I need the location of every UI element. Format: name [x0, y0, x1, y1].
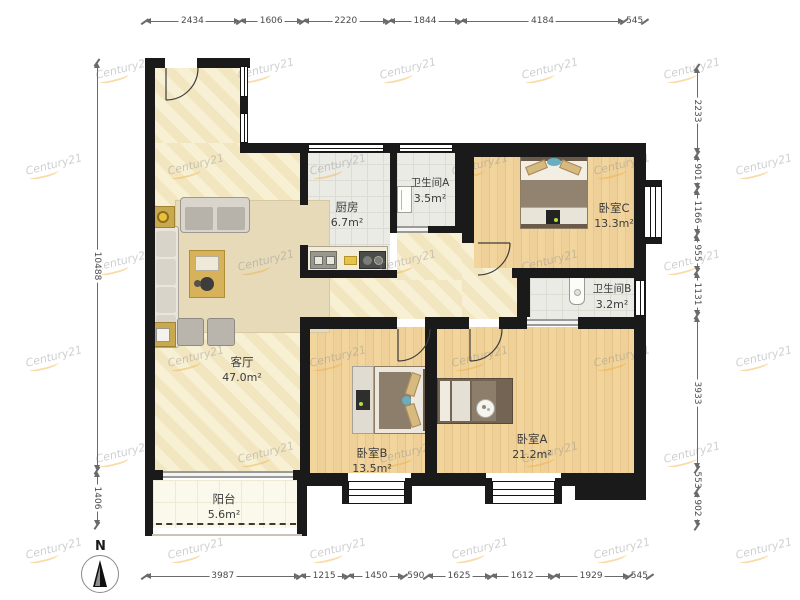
century21-watermark: Century21	[734, 151, 793, 178]
wall	[427, 226, 462, 233]
floorplan-canvas: 客厅 47.0m² 厨房 6.7m² 卫生间A 3.5m² 卧室C 13.3m²…	[0, 0, 800, 600]
century21-watermark: Century21	[662, 439, 721, 466]
dimension-tick	[298, 18, 306, 24]
balcony-label: 阳台 5.6m²	[179, 492, 269, 522]
dimension-value: 1612	[509, 571, 536, 581]
ottoman-2	[207, 318, 235, 346]
entry-floor	[155, 68, 242, 148]
wall	[300, 143, 308, 205]
century21-watermark: Century21	[734, 343, 793, 370]
century21-watermark: Century21	[308, 535, 367, 562]
wall	[297, 480, 307, 536]
room-name: 卧室C	[569, 201, 659, 216]
dimension-segment: 1625	[427, 568, 490, 584]
dimension-tick	[385, 18, 393, 24]
bathroom-b-sliding-door	[527, 319, 578, 326]
dimension-value: 545	[624, 16, 645, 26]
dimension-value: 1406	[92, 485, 102, 512]
dimension-segment: 545	[629, 568, 650, 584]
hallway-floor-2	[397, 233, 462, 280]
dimension-segment: 1406	[89, 471, 105, 526]
wall	[575, 486, 646, 500]
bathroom-a-sliding-door	[397, 226, 428, 233]
dimension-value: 1606	[258, 16, 285, 26]
dimension-value: 1215	[311, 571, 338, 581]
dimension-segment: 1450	[348, 568, 405, 584]
round-rug	[476, 399, 495, 418]
room-name: 卧室B	[327, 446, 417, 461]
room-name: 客厅	[197, 355, 287, 370]
dimension-tick	[620, 18, 628, 24]
bathroom-a-window	[399, 144, 453, 152]
wardrobe-b	[352, 366, 374, 434]
dimension-segment: 901	[689, 154, 705, 189]
room-name: 阳台	[179, 492, 269, 507]
wall	[499, 317, 527, 329]
dimension-tick	[343, 573, 351, 579]
stove	[359, 251, 386, 269]
century21-watermark: Century21	[378, 55, 437, 82]
wall	[240, 96, 248, 114]
window	[240, 113, 248, 143]
dimension-segment: 590	[404, 568, 427, 584]
dimension-value: 3933	[692, 379, 702, 406]
wall	[517, 268, 530, 317]
dimension-value: 1844	[412, 16, 439, 26]
dimension-value: 2434	[179, 16, 206, 26]
room-area: 6.7m²	[302, 215, 392, 230]
dimension-segment: 10488	[89, 62, 105, 471]
bedroom-c-label: 卧室C 13.3m²	[569, 201, 659, 231]
bedroom-a-label: 卧室A 21.2m²	[487, 432, 577, 462]
dimension-value: 902	[692, 498, 702, 519]
dimension-value: 955	[692, 243, 702, 264]
sink	[310, 251, 337, 269]
dimension-segment: 1612	[491, 568, 554, 584]
room-name: 厨房	[302, 200, 392, 215]
dimension-value: 10488	[92, 250, 102, 283]
wall	[300, 317, 310, 473]
century21-watermark: Century21	[24, 535, 83, 562]
north-arrow-highlight	[95, 566, 100, 586]
ottoman	[177, 318, 204, 346]
bed-b	[374, 366, 427, 434]
room-name: 卧室A	[487, 432, 577, 447]
dimension-value: 2220	[332, 16, 359, 26]
wall	[145, 58, 155, 480]
bedroom-a-bay-window	[492, 481, 555, 504]
wall	[145, 480, 153, 536]
dimension-tick	[94, 467, 100, 475]
bedroom-b-label: 卧室B 13.5m²	[327, 446, 417, 476]
dimension-value: 1131	[692, 280, 702, 307]
wall	[411, 473, 486, 486]
room-area: 47.0m²	[197, 370, 287, 385]
balcony-sliding-door	[163, 471, 293, 478]
living-room-label: 客厅 47.0m²	[197, 355, 287, 385]
room-area: 5.6m²	[179, 507, 269, 522]
wall	[300, 317, 397, 329]
dimension-tick	[694, 185, 700, 193]
room-area: 13.5m²	[327, 461, 417, 476]
dimension-value: 1450	[363, 571, 390, 581]
balcony-edge	[152, 534, 302, 536]
dimension-tick	[694, 63, 700, 71]
wall	[145, 58, 165, 68]
wall	[485, 478, 492, 504]
coffee-table	[189, 250, 225, 298]
dimension-tick	[549, 573, 557, 579]
dimension-value: 2233	[692, 97, 702, 124]
dimension-tick	[141, 18, 149, 24]
wall	[578, 317, 646, 329]
dimension-segment: 1131	[689, 272, 705, 316]
dimension-value: 1625	[446, 571, 473, 581]
dimension-segment: 1844	[389, 13, 461, 29]
dimension-tick	[141, 573, 149, 579]
wall	[634, 238, 662, 244]
dimension-segment: 902	[689, 491, 705, 526]
dimension-tick	[694, 312, 700, 320]
dimension-segment: 4184	[461, 13, 624, 29]
dimension-segment: 1929	[554, 568, 629, 584]
century21-watermark: Century21	[662, 247, 721, 274]
dimension-value: 545	[629, 571, 650, 581]
dimension-tick	[694, 268, 700, 276]
dimension-value: 901	[692, 161, 702, 182]
room-area: 13.3m²	[569, 216, 659, 231]
kitchen-window	[308, 144, 384, 152]
century21-watermark: Century21	[734, 535, 793, 562]
dimension-tick	[296, 573, 304, 579]
century21-watermark: Century21	[450, 535, 509, 562]
dimension-tick	[694, 150, 700, 158]
wall	[300, 270, 397, 278]
wall	[405, 478, 412, 504]
balcony-railing	[156, 523, 296, 525]
room-name: 卫生间A	[385, 176, 475, 191]
dimension-tick	[646, 573, 654, 579]
wall	[512, 268, 646, 278]
dimension-value: 1166	[692, 198, 702, 225]
room-area: 21.2m²	[487, 447, 577, 462]
dimension-segment: 3987	[145, 568, 300, 584]
dimension-segment: 1215	[300, 568, 347, 584]
bathroom-b-label: 卫生间B 3.2m²	[567, 282, 657, 312]
room-area: 3.5m²	[385, 191, 475, 206]
century21-watermark: Century21	[520, 55, 579, 82]
bathroom-a-label: 卫生间A 3.5m²	[385, 176, 475, 206]
dimension-segment: 955	[689, 235, 705, 272]
tv-b	[356, 390, 370, 410]
cutting-board	[344, 256, 357, 265]
century21-watermark: Century21	[592, 535, 651, 562]
wall	[425, 317, 437, 473]
dimension-segment: 3933	[689, 316, 705, 469]
kitchen-label: 厨房 6.7m²	[302, 200, 392, 230]
century21-watermark: Century21	[662, 55, 721, 82]
dimension-tick	[624, 573, 632, 579]
wall	[462, 143, 646, 157]
dimension-value: 4184	[529, 16, 556, 26]
dimension-tick	[236, 18, 244, 24]
dimension-tick	[694, 522, 700, 530]
wall	[561, 473, 646, 486]
tv	[546, 210, 560, 224]
dimension-tick	[400, 573, 408, 579]
dimension-tick	[486, 573, 494, 579]
dimension-tick	[694, 487, 700, 495]
north-label: N	[95, 539, 106, 554]
dimension-tick	[694, 231, 700, 239]
dimension-tick	[457, 18, 465, 24]
dimension-tick	[641, 18, 649, 24]
loveseat-sofa	[180, 197, 250, 233]
bed-a	[437, 378, 513, 424]
window	[240, 66, 248, 97]
room-area: 3.2m²	[567, 297, 657, 312]
dimension-value: 553	[692, 469, 702, 490]
room-name: 卫生间B	[567, 282, 657, 297]
wall	[555, 478, 562, 504]
dimension-tick	[694, 465, 700, 473]
dimension-segment: 2434	[145, 13, 240, 29]
dimension-value: 1929	[578, 571, 605, 581]
dimension-value: 3987	[209, 571, 236, 581]
dimension-segment: 553	[689, 469, 705, 491]
dimension-segment: 2220	[303, 13, 390, 29]
dimension-segment: 1606	[240, 13, 303, 29]
dimension-tick	[94, 58, 100, 66]
dimension-value: 590	[405, 571, 426, 581]
dimension-segment: 1166	[689, 189, 705, 234]
dimension-segment: 2233	[689, 67, 705, 154]
wall	[145, 470, 163, 480]
dimension-tick	[94, 522, 100, 530]
century21-watermark: Century21	[166, 535, 225, 562]
kitchen-counter	[306, 246, 388, 273]
dimension-tick	[423, 573, 431, 579]
bedroom-b-bay-window	[348, 481, 405, 504]
century21-watermark: Century21	[24, 151, 83, 178]
century21-watermark: Century21	[24, 343, 83, 370]
dimension-segment: 545	[624, 13, 645, 29]
